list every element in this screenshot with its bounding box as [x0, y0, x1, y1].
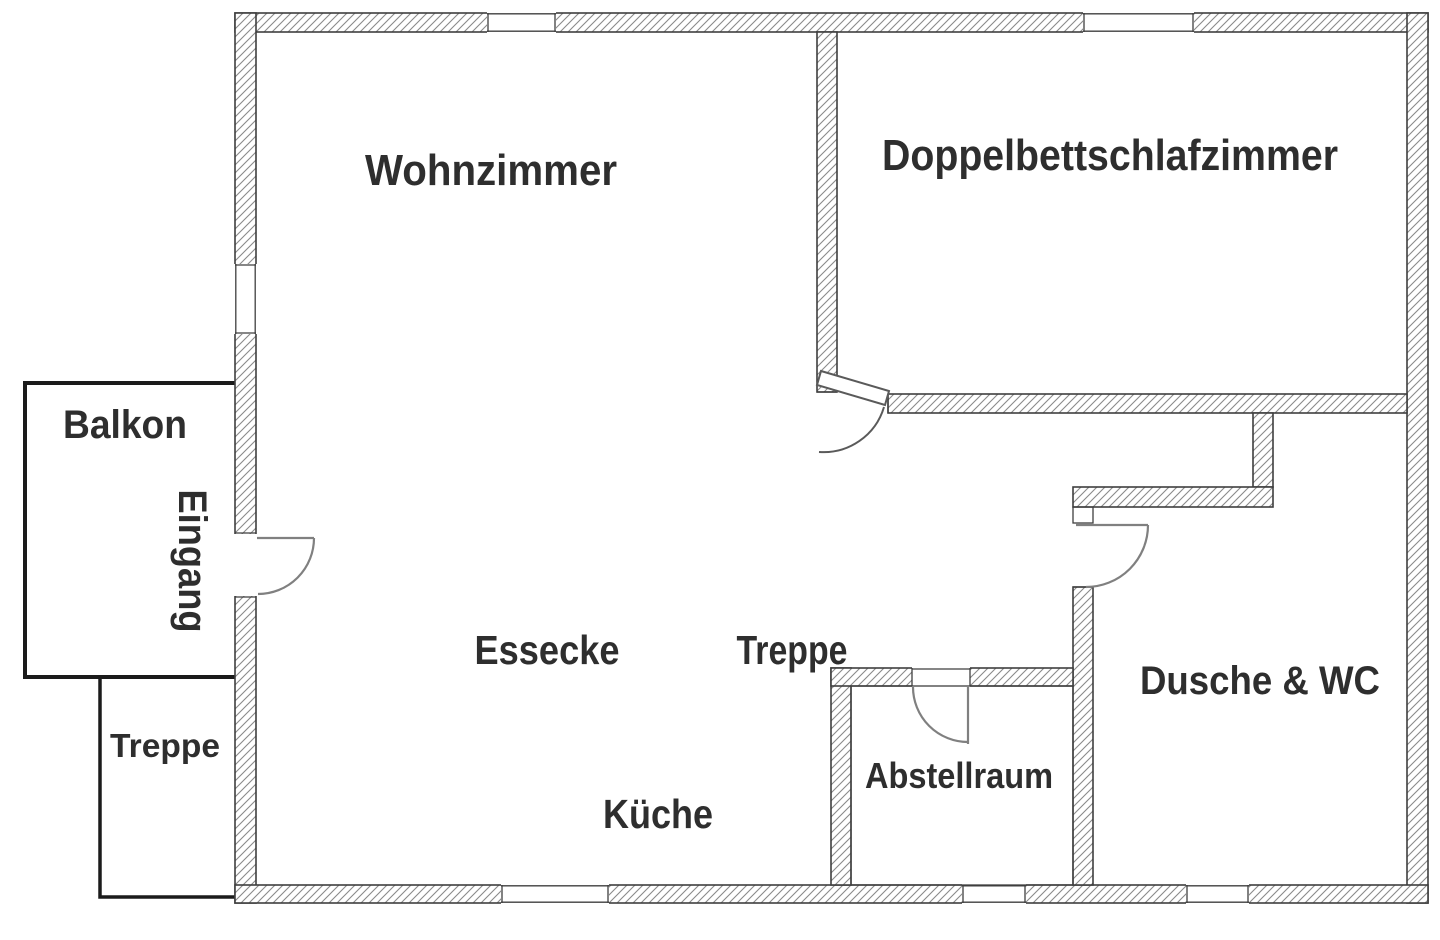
- room-label-essecke: Essecke: [475, 627, 620, 673]
- room-label-treppe-inside: Treppe: [737, 627, 848, 673]
- wall-top: [235, 13, 1428, 32]
- wall-bottom: [235, 885, 1428, 903]
- window-bottom-1: [501, 883, 609, 905]
- window-bottom-2: [962, 883, 1026, 905]
- wall-hall-top: [1073, 487, 1273, 507]
- room-label-eingang: Eingang: [170, 490, 214, 633]
- room-label-balkon: Balkon: [63, 403, 187, 447]
- wall-hall-notch-vertical: [1253, 413, 1273, 487]
- floorplan-canvas: Wohnzimmer Doppelbettschlafzimmer Balkon…: [0, 0, 1440, 940]
- room-label-dusche-wc: Dusche & WC: [1140, 659, 1380, 703]
- room-label-abstellraum: Abstellraum: [865, 755, 1053, 796]
- room-label-wohnzimmer: Wohnzimmer: [365, 146, 617, 195]
- wall-right: [1407, 13, 1428, 903]
- window-top-1: [487, 11, 556, 34]
- room-label-doppelbettschlafzimmer: Doppelbettschlafzimmer: [882, 131, 1338, 180]
- window-top-2: [1083, 11, 1194, 34]
- window-bottom-3: [1186, 883, 1249, 905]
- wall-bedroom-bottom: [888, 394, 1407, 413]
- floorplan-drawing: Wohnzimmer Doppelbettschlafzimmer Balkon…: [0, 0, 1440, 940]
- window-left: [233, 264, 258, 334]
- wall-bedroom-left: [817, 32, 837, 392]
- room-label-kueche: Küche: [603, 791, 713, 837]
- room-label-treppe-outside: Treppe: [110, 727, 220, 764]
- wall-storage-left: [831, 668, 851, 885]
- wall-bathroom-left: [1073, 587, 1093, 885]
- wall-left: [235, 13, 256, 903]
